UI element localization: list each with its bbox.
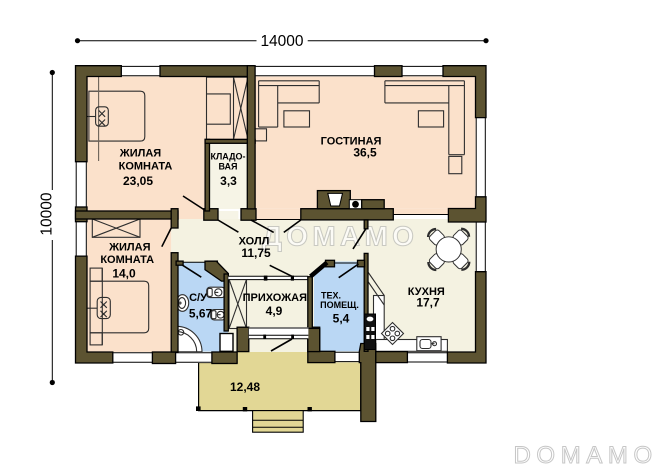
- svg-text:14000: 14000: [260, 33, 303, 50]
- svg-text:ДОМАМО: ДОМАМО: [262, 221, 418, 252]
- svg-text:23,05: 23,05: [123, 174, 153, 188]
- svg-text:5,4: 5,4: [333, 312, 350, 326]
- svg-text:ПОМЕЩ.: ПОМЕЩ.: [320, 300, 359, 310]
- svg-text:17,7: 17,7: [416, 296, 440, 310]
- svg-text:11,75: 11,75: [241, 246, 271, 260]
- svg-text:36,5: 36,5: [353, 146, 377, 160]
- svg-text:12,48: 12,48: [230, 380, 260, 394]
- svg-text:С/У: С/У: [189, 292, 207, 304]
- svg-text:ЖИЛАЯ: ЖИЛАЯ: [119, 148, 162, 160]
- svg-text:ЖИЛАЯ: ЖИЛАЯ: [108, 242, 151, 254]
- svg-text:ВАЯ: ВАЯ: [218, 162, 237, 172]
- svg-text:4,9: 4,9: [266, 304, 283, 318]
- svg-text:14,0: 14,0: [112, 267, 136, 281]
- svg-text:КЛАДО-: КЛАДО-: [210, 152, 245, 162]
- svg-text:3,3: 3,3: [220, 174, 237, 188]
- svg-text:5,67: 5,67: [189, 307, 213, 321]
- svg-text:DOMAMO: DOMAMO: [514, 442, 658, 469]
- svg-text:10000: 10000: [39, 192, 56, 235]
- svg-text:ТЕХ.: ТЕХ.: [321, 291, 341, 301]
- svg-text:КОМНАТА: КОМНАТА: [100, 254, 154, 266]
- svg-text:КОМНАТА: КОМНАТА: [119, 160, 173, 172]
- svg-text:ПРИХОЖАЯ: ПРИХОЖАЯ: [243, 292, 307, 304]
